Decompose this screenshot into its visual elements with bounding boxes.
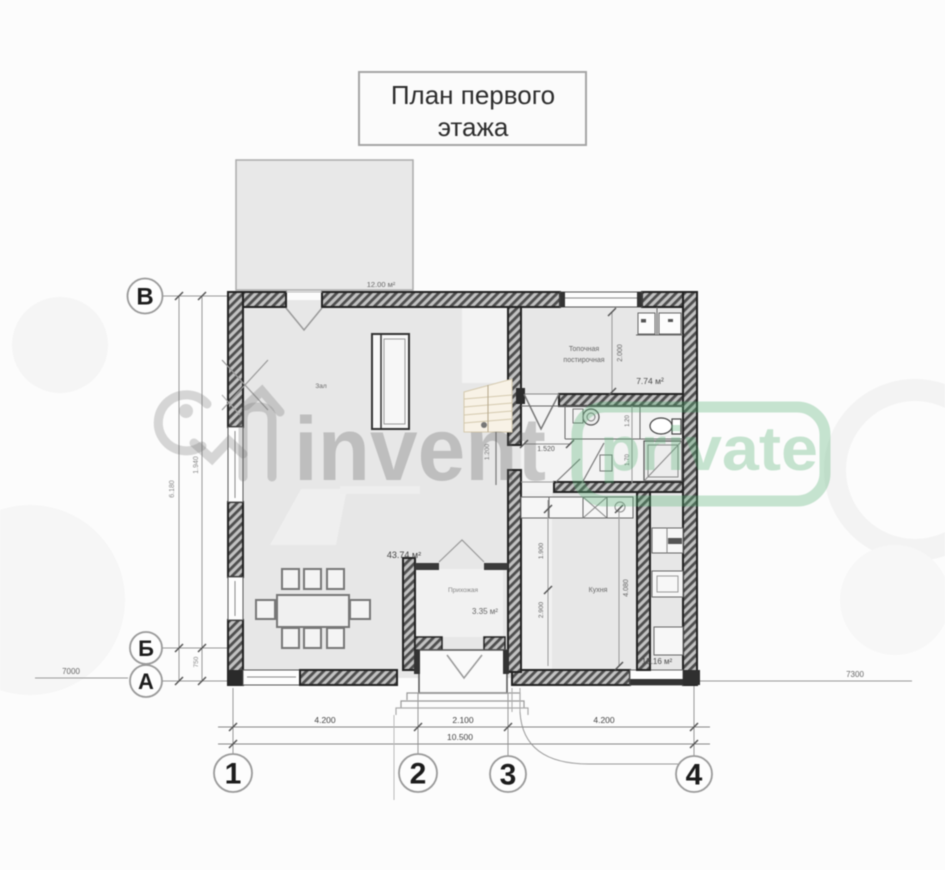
svg-text:12.00 м²: 12.00 м²: [367, 280, 396, 289]
svg-text:3: 3: [500, 759, 517, 792]
svg-text:13.16 м²: 13.16 м²: [642, 657, 673, 666]
svg-text:2.900: 2.900: [538, 601, 545, 618]
svg-text:43.74 м²: 43.74 м²: [387, 550, 421, 560]
svg-text:План первого: План первого: [391, 80, 555, 110]
svg-text:этажа: этажа: [438, 112, 509, 142]
svg-text:7300: 7300: [846, 670, 864, 679]
svg-text:В: В: [136, 284, 153, 311]
svg-text:invent: invent: [294, 400, 546, 500]
svg-text:750: 750: [193, 656, 200, 667]
svg-text:Зал: Зал: [315, 383, 327, 390]
svg-text:6.180: 6.180: [169, 480, 176, 498]
svg-text:2.100: 2.100: [452, 715, 474, 725]
svg-text:2: 2: [410, 758, 427, 791]
svg-text:10.500: 10.500: [447, 732, 473, 742]
svg-text:4.200: 4.200: [593, 715, 615, 725]
svg-text:3.35 м²: 3.35 м²: [472, 607, 498, 616]
svg-text:2.000: 2.000: [617, 344, 624, 362]
svg-text:постирочная: постирочная: [563, 357, 604, 364]
svg-text:Топочная: Топочная: [569, 346, 600, 353]
svg-text:А: А: [138, 669, 154, 694]
svg-text:4.080: 4.080: [623, 579, 630, 597]
svg-text:1.900: 1.900: [538, 542, 545, 559]
svg-text:Кухня: Кухня: [589, 587, 608, 594]
svg-text:1.940: 1.940: [193, 456, 200, 474]
svg-text:Прихожая: Прихожая: [448, 587, 479, 594]
svg-text:4.200: 4.200: [314, 715, 336, 725]
svg-text:4: 4: [686, 759, 703, 792]
svg-text:7.74 м²: 7.74 м²: [636, 376, 664, 386]
svg-text:Б: Б: [138, 636, 154, 661]
svg-text:1: 1: [225, 758, 242, 791]
svg-text:private: private: [600, 415, 818, 484]
svg-text:7000: 7000: [62, 667, 80, 676]
